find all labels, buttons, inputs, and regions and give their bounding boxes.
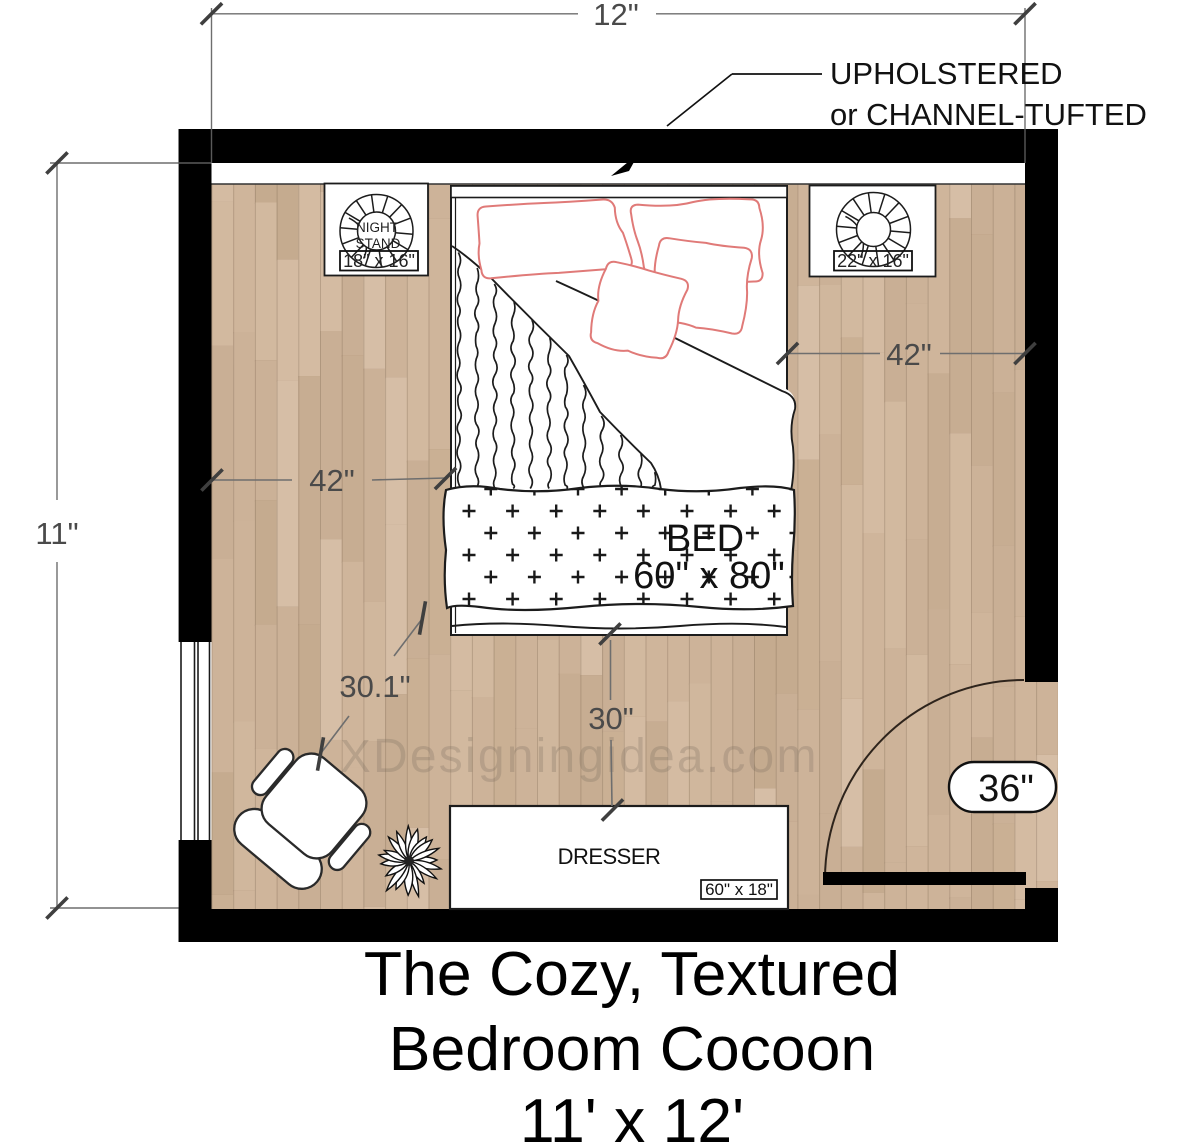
svg-text:30.1": 30.1" [339, 669, 410, 704]
svg-text:11' x 12': 11' x 12' [520, 1086, 744, 1145]
svg-text:42": 42" [309, 463, 355, 498]
svg-text:22" x 16": 22" x 16" [837, 251, 909, 271]
svg-text:UPHOLSTERED: UPHOLSTERED [830, 56, 1063, 91]
svg-text:Bedroom Cocoon: Bedroom Cocoon [389, 1014, 875, 1084]
svg-text:60" x 80": 60" x 80" [633, 555, 785, 597]
svg-text:BED: BED [666, 518, 744, 560]
svg-text:18" x 16": 18" x 16" [343, 251, 415, 271]
svg-text:11": 11" [35, 516, 78, 551]
svg-text:30": 30" [588, 701, 634, 736]
svg-text:12": 12" [593, 0, 639, 32]
svg-text:or CHANNEL-TUFTED: or CHANNEL-TUFTED [830, 97, 1147, 132]
svg-text:STAND: STAND [356, 236, 401, 251]
svg-text:The Cozy, Textured: The Cozy, Textured [364, 939, 900, 1009]
svg-text:Designingidea.com: Designingidea.com [373, 730, 819, 783]
svg-text:36": 36" [978, 768, 1034, 810]
svg-text:DRESSER: DRESSER [558, 844, 661, 869]
svg-text:NIGHT: NIGHT [356, 220, 398, 235]
svg-text:42": 42" [886, 337, 932, 372]
svg-text:60" x 18": 60" x 18" [705, 880, 773, 899]
